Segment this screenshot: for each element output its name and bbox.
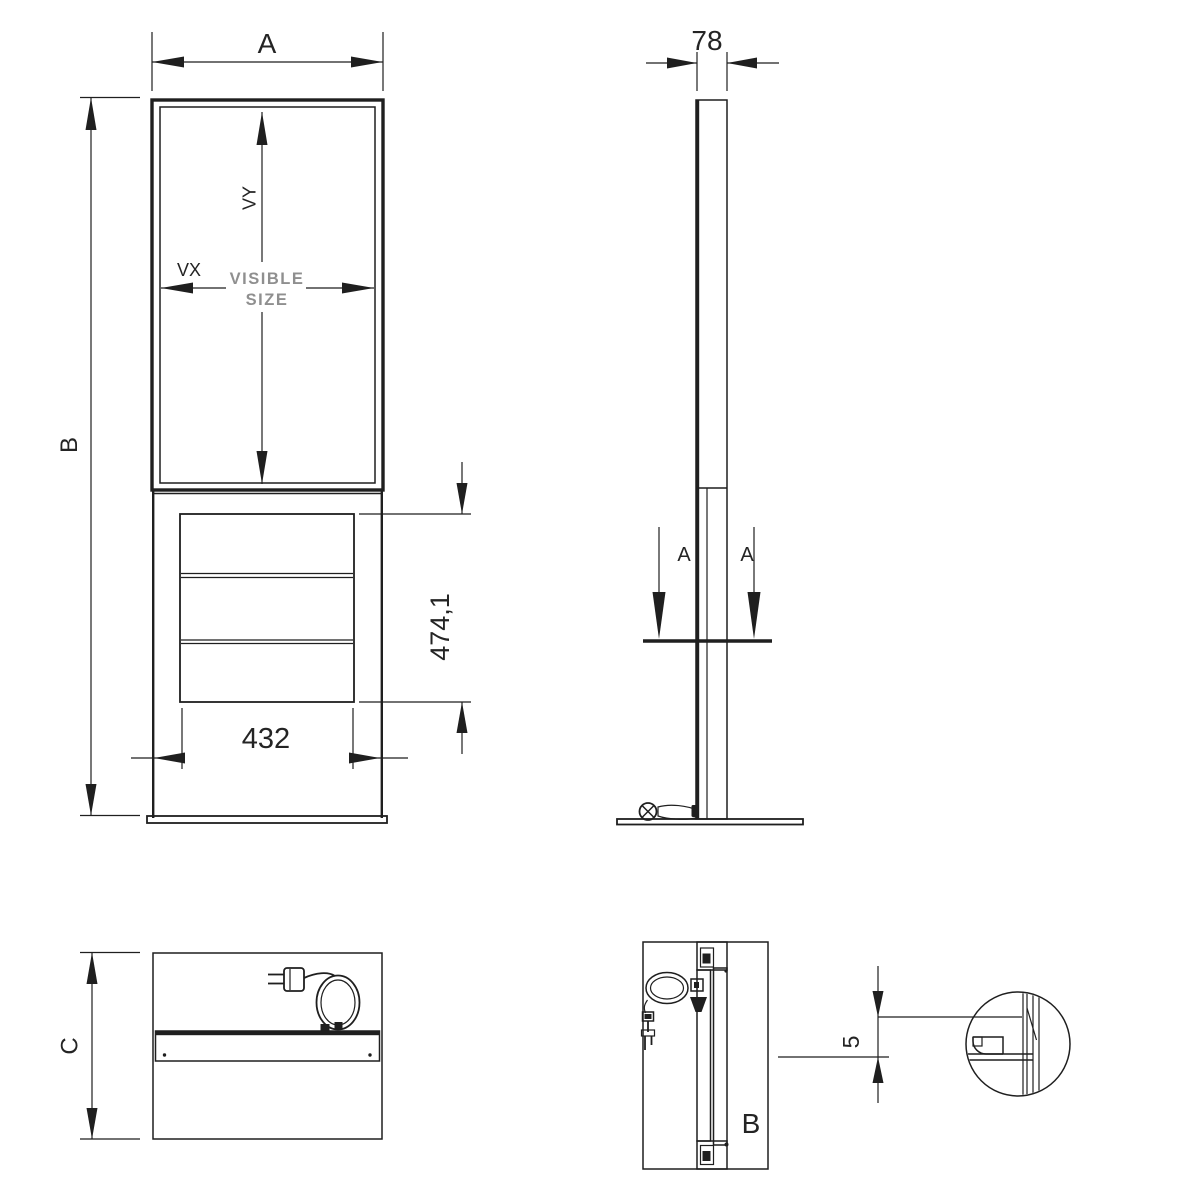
dim-label-a: A [258, 28, 277, 59]
arrowhead-up-icon [257, 112, 268, 145]
dim-label-vx: VX [177, 260, 201, 280]
base-top-view: C [57, 953, 383, 1140]
dim-vent-width: 432 [131, 708, 408, 769]
arrowhead-up-icon [873, 1057, 884, 1083]
foot-clip-notch [973, 1037, 982, 1046]
cable-clip [321, 1024, 330, 1032]
base-plate-front [147, 816, 387, 823]
section-view-label-b: B [742, 1108, 761, 1139]
section-view-b: B 5 [642, 942, 1023, 1169]
cable-bracket-hole [694, 982, 699, 988]
post-cross-bar-edge [156, 1031, 380, 1035]
arrowhead-down-icon [457, 483, 468, 514]
visible-size-text-line1: VISIBLE [230, 270, 305, 288]
arrowhead-right-icon [351, 57, 383, 68]
vent-panel [180, 514, 354, 702]
plug-face [645, 1014, 652, 1019]
arrowhead-left-icon [152, 57, 184, 68]
dim-value-432: 432 [242, 723, 290, 755]
arrowhead-up-icon [457, 702, 468, 733]
side-view: 78 A A [617, 25, 803, 825]
base-plate-outline [153, 953, 382, 1139]
cable-segment [644, 1000, 647, 1013]
arrowhead-up-icon [86, 98, 97, 131]
post-bar-left [697, 970, 711, 1141]
arrowhead-up-icon [87, 953, 98, 985]
arrowhead-down-icon [873, 991, 884, 1017]
profile-outline [696, 100, 727, 819]
section-arrow-down-icon [653, 592, 666, 639]
dim-value-5: 5 [838, 1036, 864, 1049]
power-cord-top [268, 968, 360, 1032]
dim-label-b: B [56, 437, 83, 453]
arrowhead-right-icon [349, 753, 380, 764]
arrowhead-right-icon [342, 283, 374, 294]
dim-overall-width: A [152, 28, 383, 91]
cable-loop-inner [321, 980, 355, 1025]
screw-dot [368, 1053, 371, 1056]
detail-circle [964, 988, 1070, 1100]
visible-size-text-line2: SIZE [246, 291, 289, 309]
detail-contents [964, 988, 1039, 1100]
cable-gland-icon [692, 805, 699, 817]
section-arrow-down-icon [748, 592, 761, 639]
arrowhead-down-icon [86, 784, 97, 816]
dim-value-474-1: 474,1 [425, 593, 455, 661]
arrowhead-down-icon [257, 451, 268, 484]
section-label-a-right: A [740, 544, 754, 566]
post-section [697, 942, 729, 1169]
arrowhead-right-icon [667, 58, 697, 69]
arrowhead-left-icon [727, 58, 757, 69]
vent-panel-outline [180, 514, 354, 702]
fastener [703, 1151, 711, 1161]
arrowhead-left-icon [161, 283, 193, 294]
dim-value-78: 78 [691, 25, 722, 56]
arrowhead-left-icon [154, 753, 185, 764]
totem-front-outline [147, 100, 387, 823]
arrowhead-down-icon [87, 1108, 98, 1139]
cable-loop-outer [317, 976, 360, 1030]
dim-label-vy: VY [240, 186, 260, 210]
dim-vent-height: 474,1 [359, 462, 471, 754]
section-label-a-left: A [677, 544, 691, 566]
power-plug-icon [284, 968, 304, 991]
technical-drawing-page: A B [0, 0, 1200, 1200]
screw-dot [163, 1053, 166, 1056]
cable-gland-icon [690, 997, 707, 1012]
totem-side-profile [617, 100, 803, 825]
front-view: A B [56, 28, 471, 823]
fastener [703, 954, 711, 964]
rivet-dot [725, 1143, 729, 1147]
cable-loop-inner [651, 977, 684, 999]
technical-drawing-canvas: A B [0, 0, 1200, 1200]
bend-line [1027, 1008, 1037, 1040]
dim-foot-gap: 5 [778, 966, 1022, 1103]
rivet-dot [724, 969, 727, 972]
dim-overall-height: B [56, 98, 140, 816]
post-top-block [697, 942, 727, 970]
power-cord-side [640, 803, 699, 820]
dim-base-depth: C [57, 953, 141, 1140]
cable-clip [335, 1022, 343, 1029]
dim-depth-78: 78 [646, 25, 779, 91]
dim-label-c: C [57, 1037, 84, 1054]
post-bar-right [714, 968, 728, 1145]
post-cross-bar [156, 1031, 380, 1061]
